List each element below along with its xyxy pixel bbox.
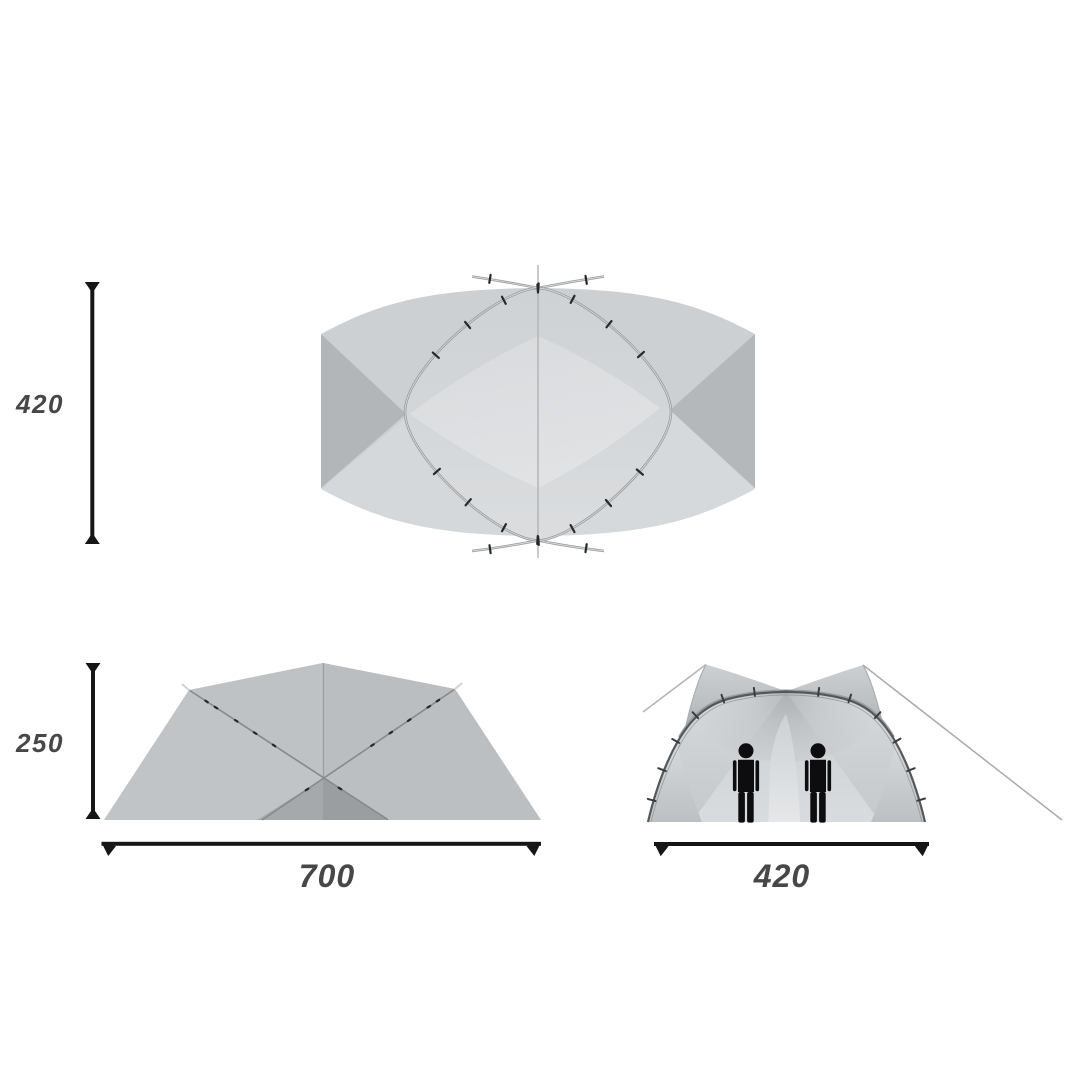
svg-text:700: 700 [299,858,355,894]
svg-text:420: 420 [15,389,64,419]
svg-text:250: 250 [15,728,64,758]
svg-text:420: 420 [753,858,810,894]
